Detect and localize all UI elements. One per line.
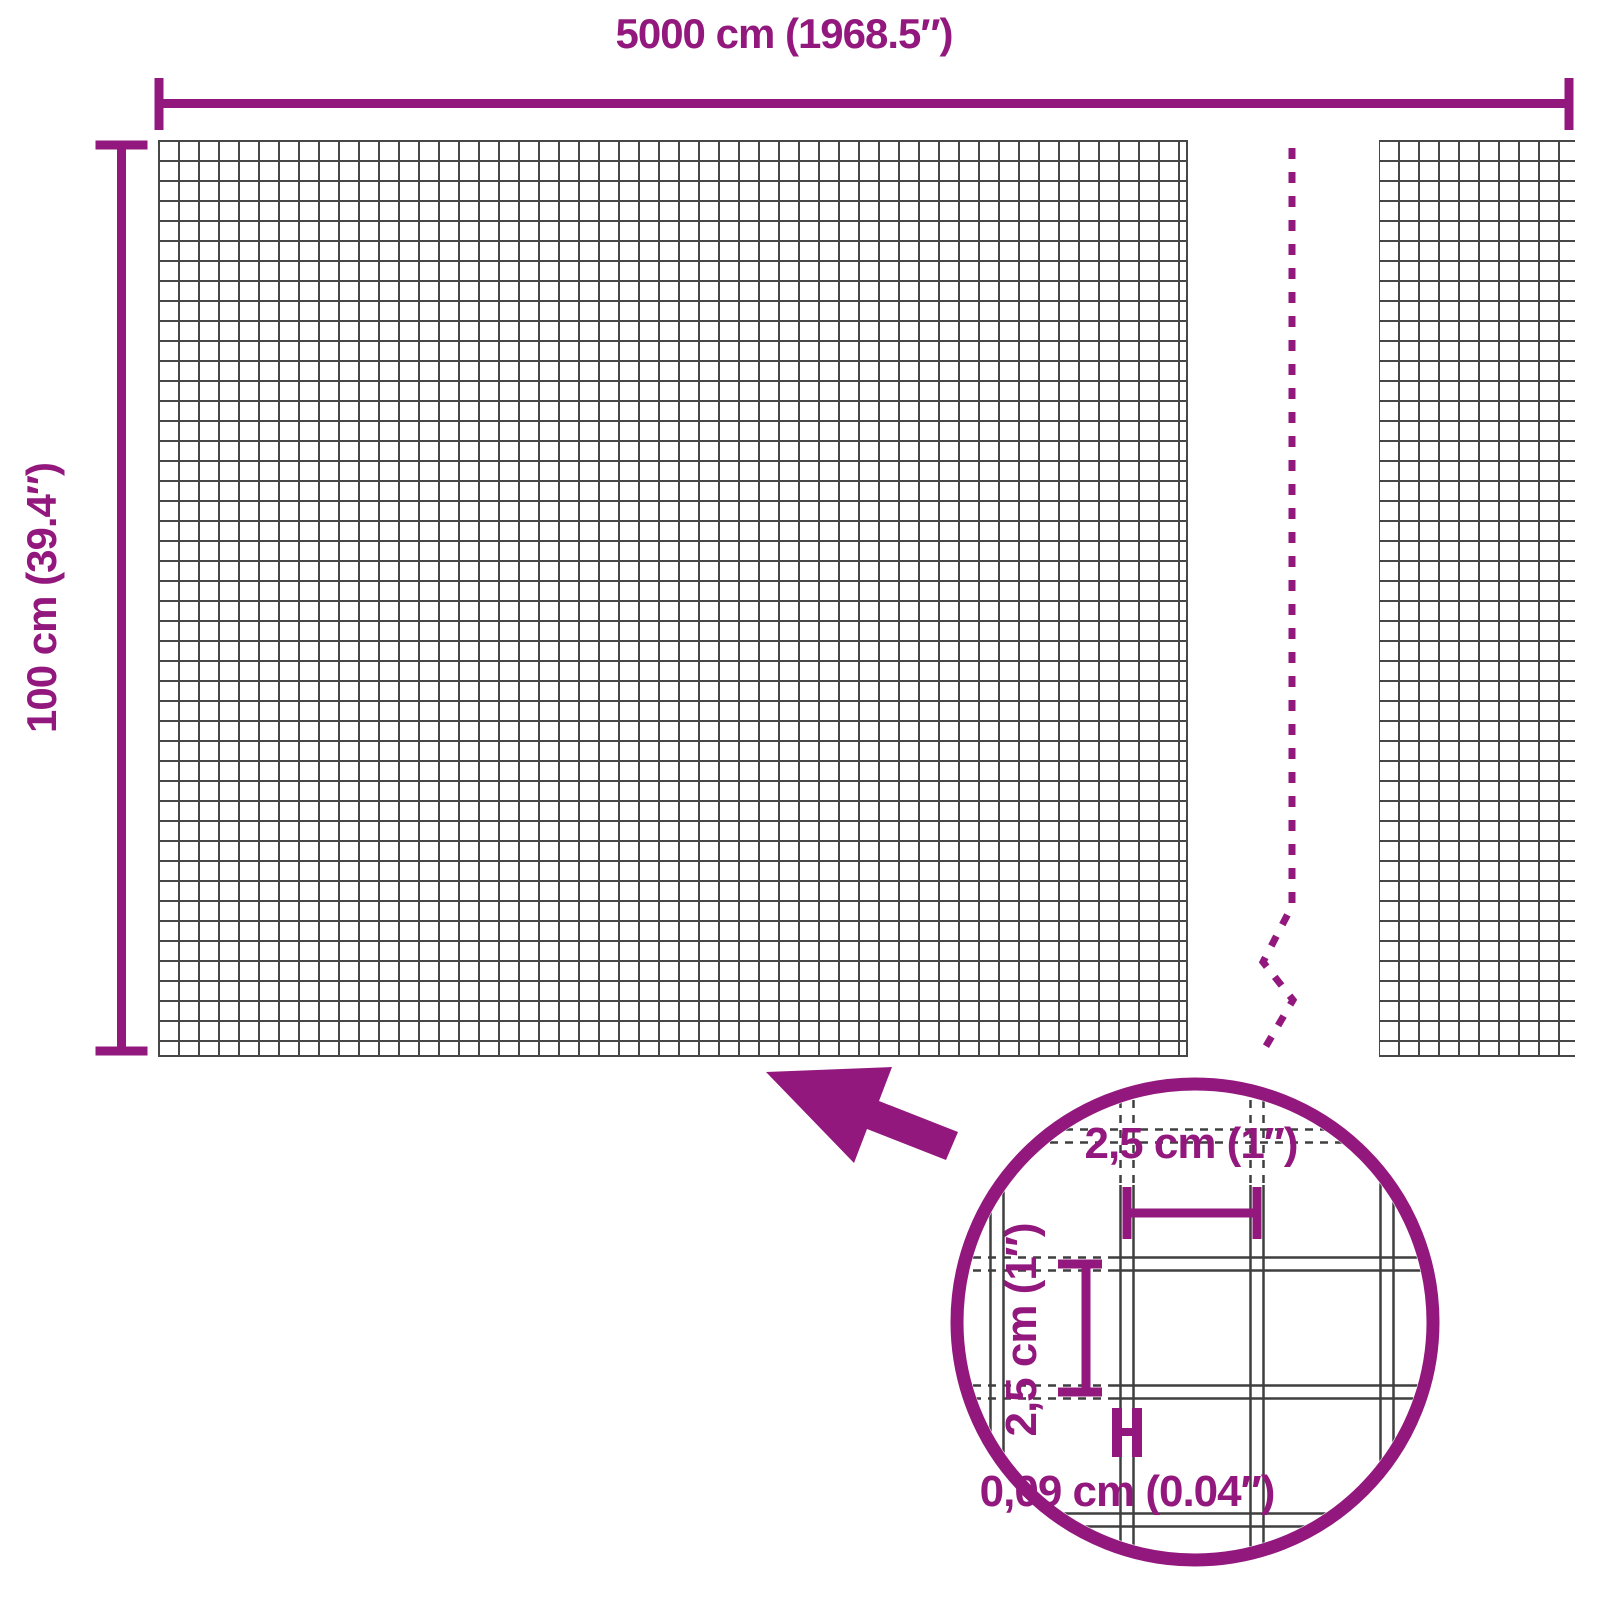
arrow-icon (766, 1067, 958, 1163)
roll-height-label: 100 cm (39.4″) (21, 463, 63, 733)
mesh-height-label: 2,5 cm (1″) (1000, 1223, 1044, 1436)
diagram-canvas (0, 0, 1600, 1600)
diagram-stage: 5000 cm (1968.5″) 100 cm (39.4″) 2,5 cm … (0, 0, 1600, 1600)
wire-thickness-label: 0,09 cm (0.04″) (980, 1470, 1275, 1514)
height-dimension-line (96, 141, 148, 1056)
mesh-panel-main (158, 140, 1188, 1057)
length-dimension-line (155, 78, 1574, 130)
mesh-width-label: 2,5 cm (1″) (1084, 1122, 1297, 1166)
roll-length-label: 5000 cm (1968.5″) (615, 13, 952, 55)
mesh-panel-continuation (1379, 140, 1575, 1057)
break-line (1262, 148, 1293, 1053)
